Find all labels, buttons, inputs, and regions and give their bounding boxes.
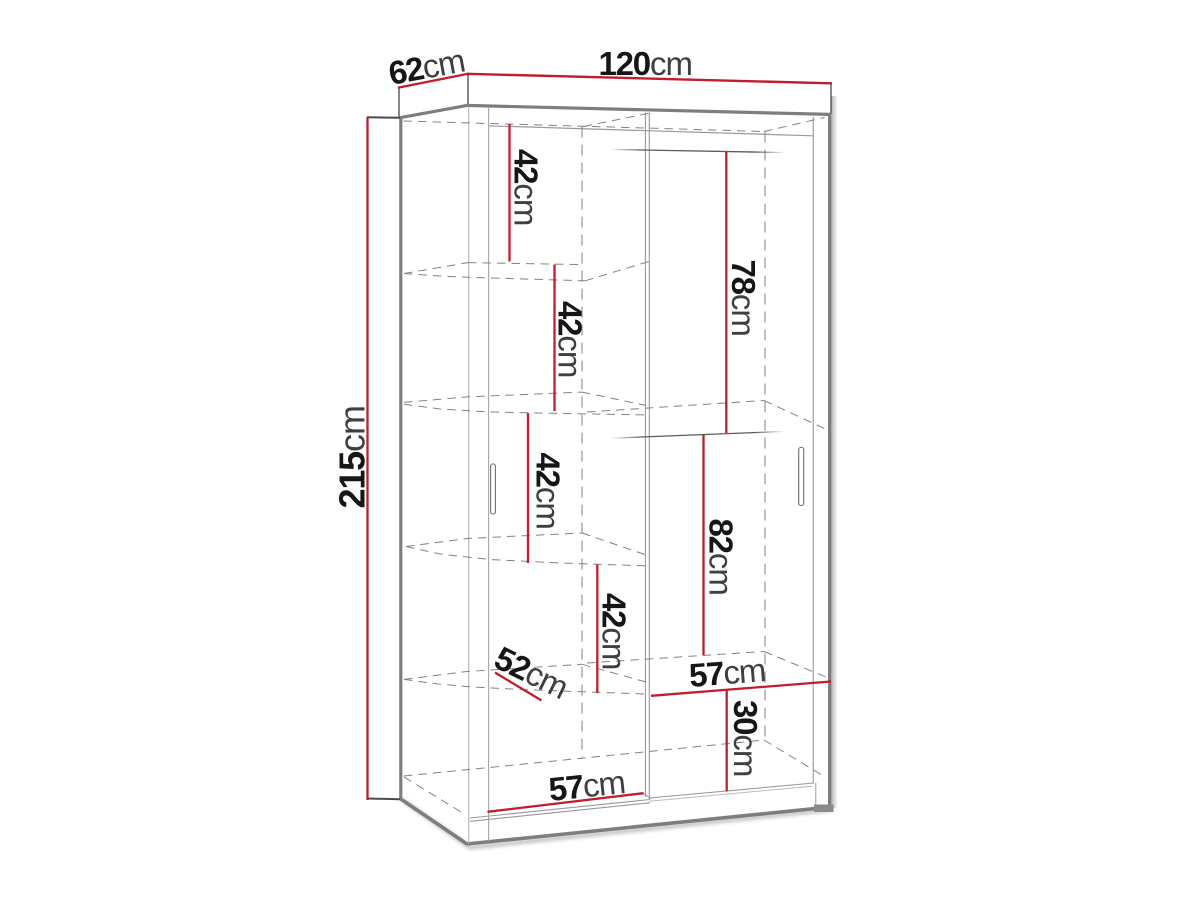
svg-text:82cm: 82cm [703,519,740,595]
svg-text:42cm: 42cm [552,301,589,377]
svg-text:42cm: 42cm [508,149,545,225]
svg-text:42cm: 42cm [530,453,567,529]
svg-text:120cm: 120cm [599,45,692,82]
svg-text:62cm: 62cm [386,42,468,92]
svg-text:30cm: 30cm [727,700,764,776]
svg-text:42cm: 42cm [596,593,633,669]
svg-text:52cm: 52cm [489,639,574,706]
svg-text:78cm: 78cm [725,260,762,336]
svg-text:215cm: 215cm [332,406,373,508]
svg-text:57cm: 57cm [688,651,767,694]
svg-text:57cm: 57cm [547,763,627,808]
